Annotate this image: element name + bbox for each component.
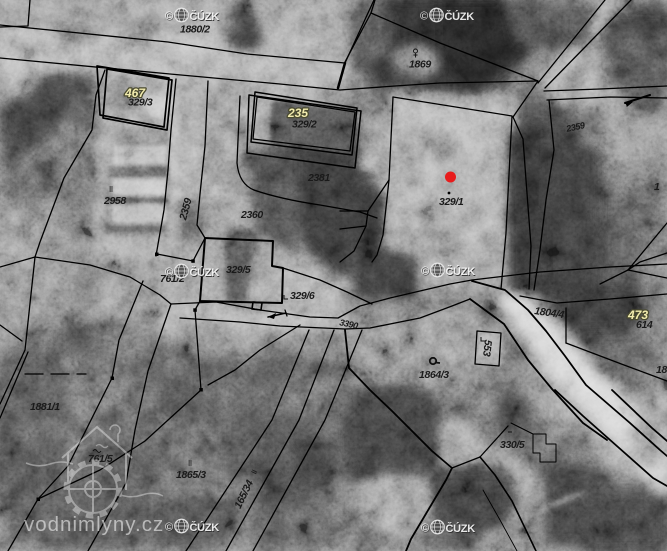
svg-text:1: 1 <box>654 181 660 193</box>
svg-text:18: 18 <box>656 364 667 376</box>
svg-text:329/2: 329/2 <box>292 119 317 131</box>
svg-text:235: 235 <box>287 106 308 120</box>
svg-text:1865/3: 1865/3 <box>176 469 206 481</box>
svg-text:2360: 2360 <box>240 209 263 221</box>
svg-text:1864/3: 1864/3 <box>419 369 449 381</box>
svg-text:2381: 2381 <box>307 172 330 184</box>
svg-text:329/6: 329/6 <box>290 290 315 302</box>
svg-text:329/5: 329/5 <box>226 264 251 276</box>
svg-text:1881/1: 1881/1 <box>30 401 60 413</box>
svg-text:vodnimlyny.cz: vodnimlyny.cz <box>24 513 164 536</box>
svg-text:II: II <box>109 185 113 194</box>
svg-text:ČÚZK: ČÚZK <box>190 10 220 23</box>
svg-text:329/1: 329/1 <box>439 196 464 208</box>
svg-text:473: 473 <box>627 308 648 322</box>
svg-text:1880/2: 1880/2 <box>180 24 210 36</box>
svg-text:467: 467 <box>124 86 146 100</box>
svg-text:II: II <box>188 459 192 468</box>
svg-text:2958: 2958 <box>103 195 126 207</box>
svg-text:553: 553 <box>480 339 494 357</box>
svg-text:761/5: 761/5 <box>88 453 113 465</box>
svg-text:1869: 1869 <box>409 59 431 71</box>
svg-text:©: © <box>165 11 173 23</box>
svg-text:330/5: 330/5 <box>500 439 525 451</box>
